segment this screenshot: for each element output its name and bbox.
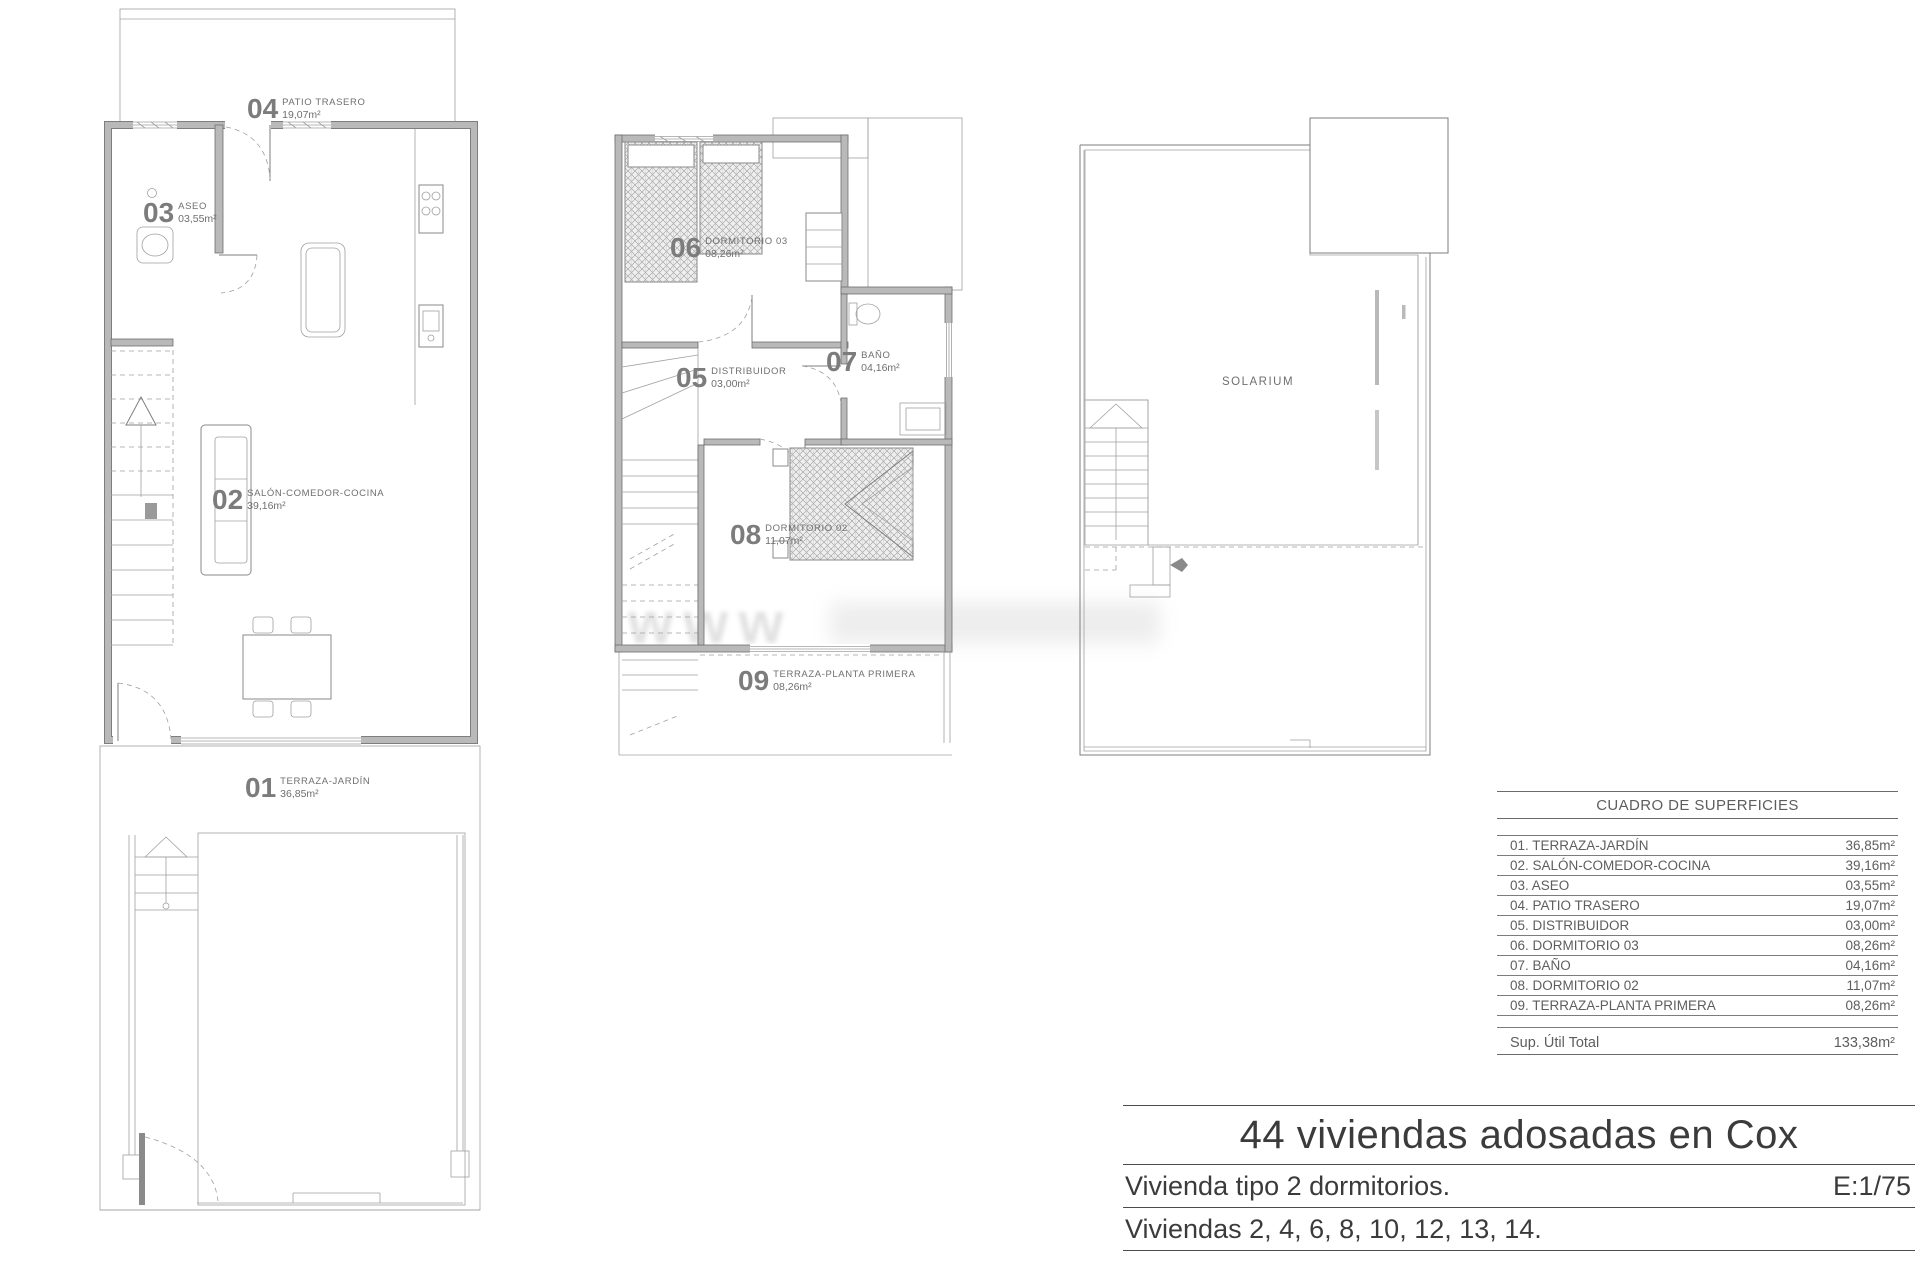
row-label: 01. TERRAZA-JARDÍN (1510, 836, 1649, 855)
table-row: 04. PATIO TRASERO 19,07m² (1497, 896, 1898, 916)
room-area: 08,26m² (773, 681, 915, 693)
room-number: 04 (247, 96, 278, 123)
drawing-scale: E:1/75 (1833, 1171, 1911, 1202)
room-area: 04,16m² (861, 362, 900, 374)
room-number: 01 (245, 775, 276, 802)
row-value: 39,16m² (1845, 856, 1895, 875)
room-name: TERRAZA-PLANTA PRIMERA (773, 669, 915, 680)
room-name: PATIO TRASERO (282, 97, 365, 108)
window-dorm2 (750, 644, 870, 653)
room-label-patio-trasero: 04 PATIO TRASERO 19,07m² (247, 96, 365, 123)
aseo-walls (111, 125, 257, 346)
roof-stairs (1085, 400, 1148, 545)
room-name: DORMITORIO 02 (765, 523, 848, 534)
adjacent-volumes (773, 118, 962, 290)
window-bottom (181, 734, 361, 747)
row-value: 04,16m² (1845, 956, 1895, 975)
room-area: 11,07m² (765, 535, 848, 547)
room-label-bano: 07 BAÑO 04,16m² (826, 349, 900, 376)
row-label: 06. DORMITORIO 03 (1510, 936, 1639, 955)
surface-table-title: CUADRO DE SUPERFICIES (1497, 791, 1898, 819)
room-area: 36,85m² (280, 788, 370, 800)
room-name: ASEO (178, 201, 217, 212)
room-name: TERRAZA-JARDÍN (280, 776, 370, 787)
title-block: 44 viviendas adosadas en Cox Vivienda ti… (1123, 1105, 1915, 1251)
surface-table-rows: 01. TERRAZA-JARDÍN 36,85m² 02. SALÓN-COM… (1497, 835, 1898, 1016)
table-row: 08. DORMITORIO 02 11,07m² (1497, 976, 1898, 996)
room-label-terraza-primera: 09 TERRAZA-PLANTA PRIMERA 08,26m² (738, 668, 916, 695)
room-number: 09 (738, 668, 769, 695)
garden-gate (139, 1133, 218, 1205)
garden-stairs (135, 837, 198, 910)
dorm3-partition (622, 295, 848, 348)
roof-lower-details (1084, 547, 1426, 748)
row-value: 11,07m² (1846, 976, 1895, 995)
room-area: 19,07m² (282, 109, 365, 121)
dining-table (243, 617, 331, 717)
room-name: SALÓN-COMEDOR-COCINA (247, 488, 384, 499)
roof-outline (1080, 118, 1448, 755)
room-name: BAÑO (861, 350, 900, 361)
dwelling-type-row: Vivienda tipo 2 dormitorios. E:1/75 (1123, 1165, 1915, 1208)
room-label-salon: 02 SALÓN-COMEDOR-COCINA 39,16m² (212, 487, 384, 514)
room-label-dormitorio-02: 08 DORMITORIO 02 11,07m² (730, 522, 848, 549)
solarium-label: SOLARIUM (1222, 376, 1294, 388)
room-area: 39,16m² (247, 500, 384, 512)
room-label-terraza-jardin: 01 TERRAZA-JARDÍN 36,85m² (245, 775, 370, 802)
room-number: 03 (143, 200, 174, 227)
room-area: 03,00m² (711, 378, 786, 390)
row-label: 07. BAÑO (1510, 956, 1571, 975)
table-row: 03. ASEO 03,55m² (1497, 876, 1898, 896)
table-row: 01. TERRAZA-JARDÍN 36,85m² (1497, 836, 1898, 856)
total-label: Sup. Útil Total (1510, 1030, 1599, 1056)
row-value: 08,26m² (1845, 996, 1895, 1015)
surface-table: CUADRO DE SUPERFICIES 01. TERRAZA-JARDÍN… (1497, 791, 1898, 1055)
surface-table-spacer (1497, 819, 1898, 835)
room-name: DISTRIBUIDOR (711, 366, 786, 377)
table-row: 07. BAÑO 04,16m² (1497, 956, 1898, 976)
row-label: 08. DORMITORIO 02 (1510, 976, 1639, 995)
table-row: 06. DORMITORIO 03 08,26m² (1497, 936, 1898, 956)
surface-table-total: Sup. Útil Total 133,38m² (1497, 1030, 1898, 1055)
shower (900, 403, 946, 435)
row-label: 03. ASEO (1510, 876, 1569, 895)
row-value: 03,55m² (1845, 876, 1895, 895)
ground-floor-plan (85, 5, 485, 1255)
room-label-distribuidor: 05 DISTRIBUIDOR 03,00m² (676, 365, 786, 392)
stairs-ground (111, 350, 173, 645)
row-value: 08,26m² (1845, 936, 1895, 955)
room-name: DORMITORIO 03 (705, 236, 788, 247)
room-number: 07 (826, 349, 857, 376)
units-row: Viviendas 2, 4, 6, 8, 10, 12, 13, 14. (1123, 1208, 1915, 1251)
row-label: 09. TERRAZA-PLANTA PRIMERA (1510, 996, 1716, 1015)
room-label-dormitorio-03: 06 DORMITORIO 03 08,26m² (670, 235, 788, 262)
room-number: 05 (676, 365, 707, 392)
total-value: 133,38m² (1834, 1030, 1895, 1056)
glazing-marks (1375, 290, 1406, 470)
units-list: Viviendas 2, 4, 6, 8, 10, 12, 13, 14. (1125, 1214, 1542, 1245)
room-number: 06 (670, 235, 701, 262)
dwelling-type: Vivienda tipo 2 dormitorios. (1125, 1171, 1450, 1202)
washbasin (137, 227, 173, 263)
table-row: 09. TERRAZA-PLANTA PRIMERA 08,26m² (1497, 996, 1898, 1016)
surface-table-total-divider (1497, 1027, 1898, 1028)
project-title: 44 viviendas adosadas en Cox (1123, 1106, 1915, 1165)
room-area: 08,26m² (705, 248, 788, 260)
kitchen-counter (415, 129, 443, 405)
table-row: 02. SALÓN-COMEDOR-COCINA 39,16m² (1497, 856, 1898, 876)
kitchen-island (301, 243, 345, 337)
row-label: 05. DISTRIBUIDOR (1510, 916, 1629, 935)
room-label-aseo: 03 ASEO 03,55m² (143, 200, 217, 227)
row-label: 02. SALÓN-COMEDOR-COCINA (1510, 856, 1710, 875)
terrace-door (113, 683, 171, 747)
solarium-tiles (1085, 150, 1418, 545)
window-bathroom (944, 323, 953, 377)
wardrobe-dorm3 (806, 213, 842, 281)
row-value: 03,00m² (1845, 916, 1895, 935)
row-label: 04. PATIO TRASERO (1510, 896, 1640, 915)
room-area: 03,55m² (178, 213, 217, 225)
row-value: 19,07m² (1845, 896, 1895, 915)
room-number: 02 (212, 487, 243, 514)
toilet-bathroom (849, 303, 880, 325)
row-value: 36,85m² (1845, 836, 1895, 855)
roof-plan (1070, 110, 1490, 760)
table-row: 05. DISTRIBUIDOR 03,00m² (1497, 916, 1898, 936)
drawing-sheet: www (0, 0, 1920, 1280)
entry-door (225, 118, 271, 181)
room-number: 08 (730, 522, 761, 549)
